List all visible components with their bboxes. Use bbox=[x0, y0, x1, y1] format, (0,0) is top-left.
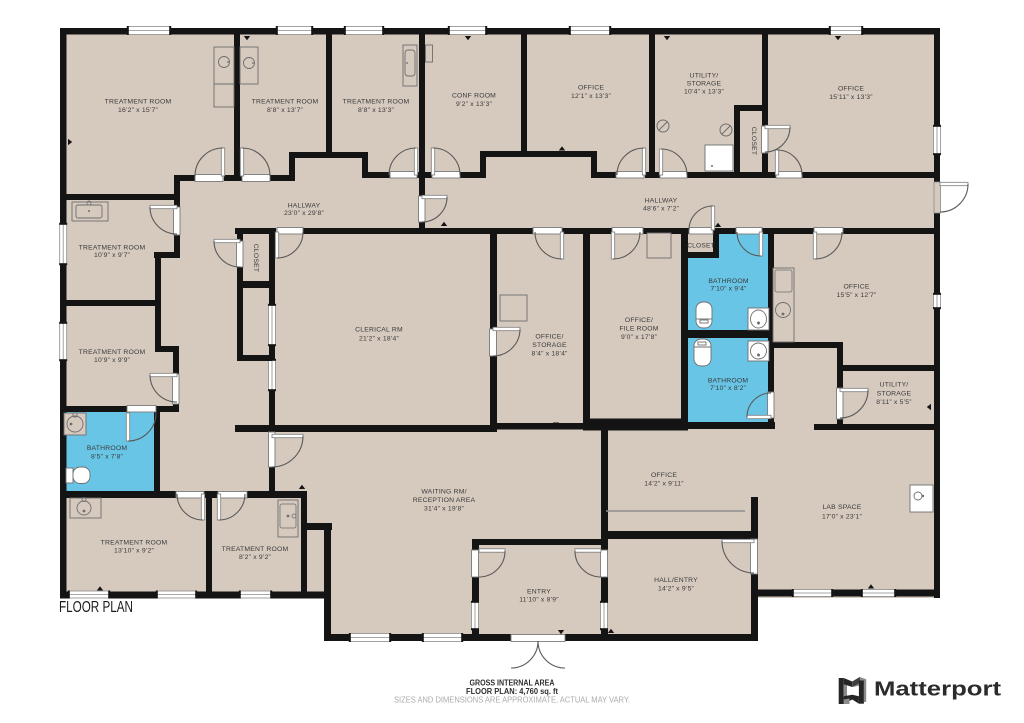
svg-text:HALL/ENTRY14’2” x 9’5”: HALL/ENTRY14’2” x 9’5” bbox=[654, 577, 698, 593]
svg-text:UTILITY/STORAGE8’11” x 5’5”: UTILITY/STORAGE8’11” x 5’5” bbox=[876, 382, 912, 407]
svg-text:OFFICE/STORAGE8’4” x 18’4”: OFFICE/STORAGE8’4” x 18’4” bbox=[531, 334, 568, 358]
svg-text:BATHROOM7’10” x 8’2”: BATHROOM7’10” x 8’2” bbox=[708, 378, 749, 393]
svg-text:BATHROOM8’5” x 7’8”: BATHROOM8’5” x 7’8” bbox=[87, 445, 128, 461]
svg-text:Matterport: Matterport bbox=[874, 679, 1001, 701]
svg-text:CLOSET: CLOSET bbox=[252, 244, 259, 272]
svg-text:OFFICE/FILE ROOM9’0” x 17’8”: OFFICE/FILE ROOM9’0” x 17’8” bbox=[619, 317, 658, 341]
svg-text:CLOSET: CLOSET bbox=[687, 243, 715, 250]
svg-text:HALLWAY48’6” x 7’2”: HALLWAY48’6” x 7’2” bbox=[643, 198, 680, 213]
svg-text:SIZES AND DIMENSIONS ARE APPRO: SIZES AND DIMENSIONS ARE APPROXIMATE, AC… bbox=[394, 696, 630, 705]
svg-text:CONF ROOM9’2” x 13’3”: CONF ROOM9’2” x 13’3” bbox=[452, 93, 496, 109]
svg-text:HALLWAY23’0” x 29’8”: HALLWAY23’0” x 29’8” bbox=[284, 203, 325, 218]
svg-text:BATHROOM7’10” x 9’4”: BATHROOM7’10” x 9’4” bbox=[708, 278, 749, 293]
svg-text:CLOSET: CLOSET bbox=[750, 127, 757, 155]
svg-text:FLOOR PLAN: FLOOR PLAN bbox=[59, 599, 133, 616]
